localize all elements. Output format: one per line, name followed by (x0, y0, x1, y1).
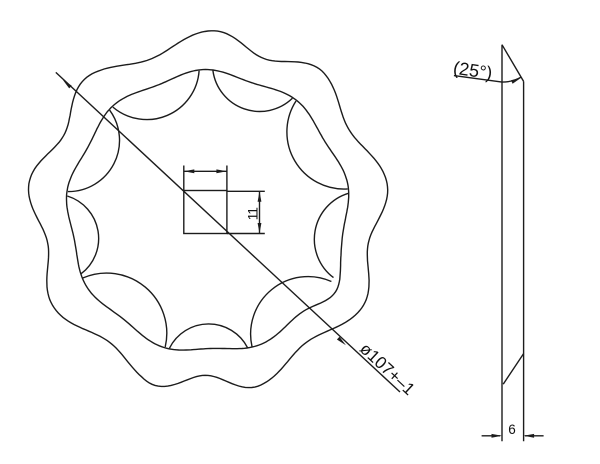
svg-text:ø107+–1: ø107+–1 (356, 339, 418, 399)
svg-text:11: 11 (245, 208, 260, 221)
svg-text:(25°): (25°) (452, 58, 494, 84)
svg-text:6: 6 (508, 422, 516, 437)
